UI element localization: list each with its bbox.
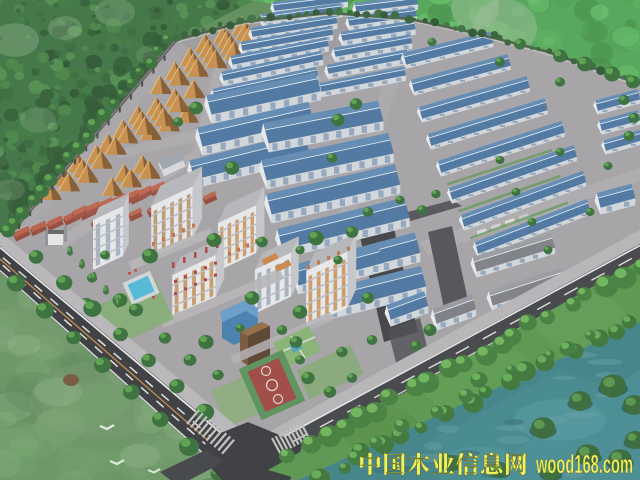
svg-text:wood168.com: wood168.com [535, 449, 633, 479]
